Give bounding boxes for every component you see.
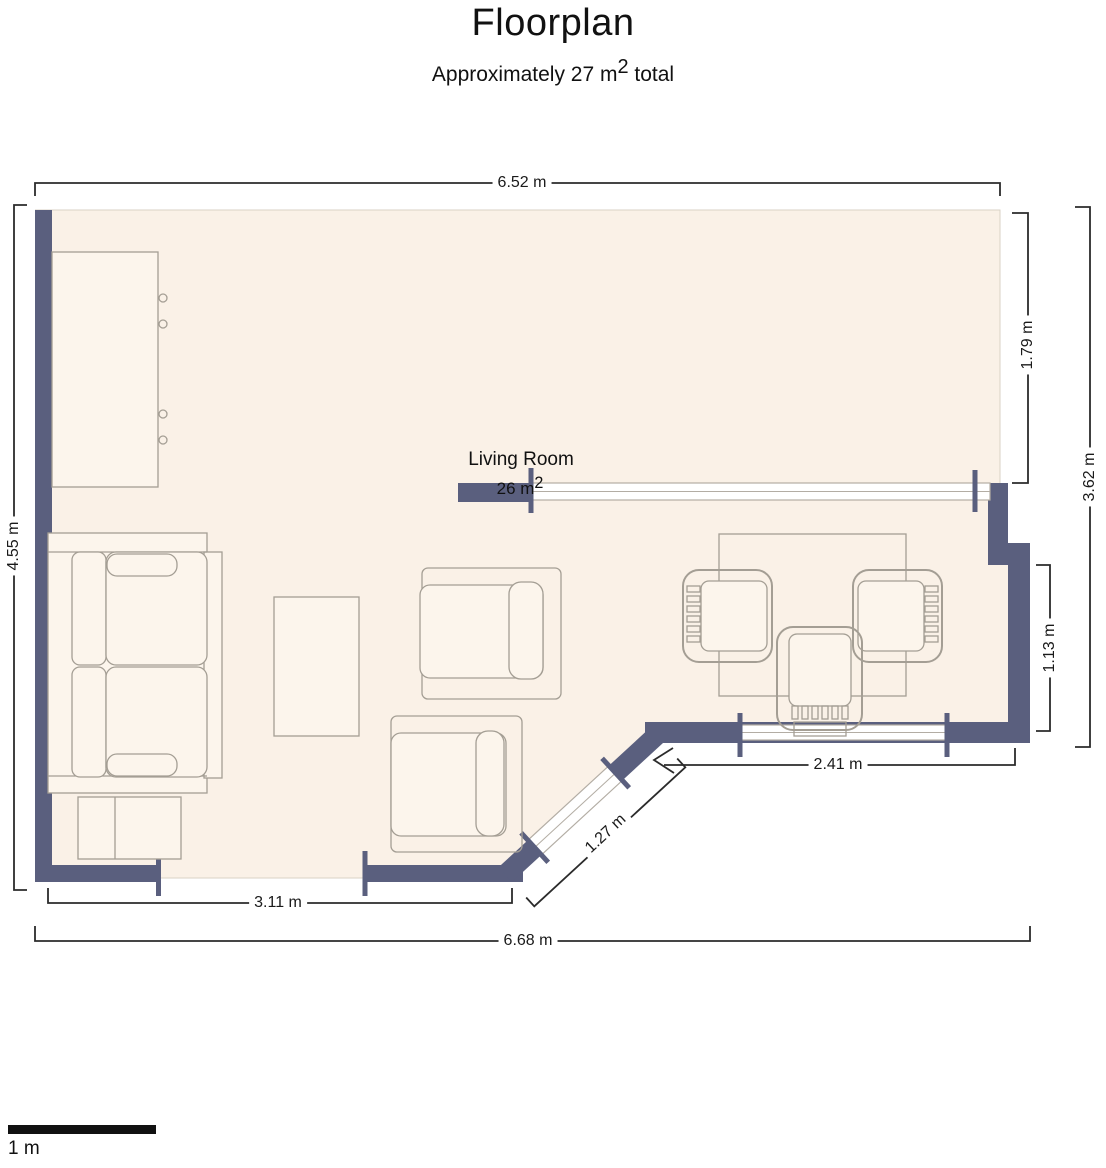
scale-bar xyxy=(8,1125,156,1134)
room-name-label: Living Room xyxy=(468,449,574,471)
armchair-bottom xyxy=(391,716,522,852)
ottoman xyxy=(78,797,181,859)
dim-label-top-width: 6.52 m xyxy=(493,174,552,192)
subtitle-superscript: 2 xyxy=(617,56,628,78)
floorplan-drawing xyxy=(0,0,1106,1168)
room-area-superscript: 2 xyxy=(534,474,543,492)
dim-label-bottom-inner: 3.11 m xyxy=(249,894,307,912)
page-subtitle: Approximately 27 m2 total xyxy=(432,63,674,87)
coffee-table xyxy=(274,597,359,736)
dim-label-bottom-total: 6.68 m xyxy=(499,932,558,950)
subtitle-suffix: total xyxy=(629,63,675,86)
dim-label-left-height: 4.55 m xyxy=(5,517,23,576)
cabinet xyxy=(52,252,167,487)
dim-label-right-total: 3.62 m xyxy=(1081,448,1099,507)
dim-label-right-upper: 1.79 m xyxy=(1019,316,1037,375)
floorplan-page: Floorplan Approximately 27 m2 total Livi… xyxy=(0,0,1106,1168)
dim-label-dining-width: 2.41 m xyxy=(809,756,868,774)
page-title: Floorplan xyxy=(472,2,635,45)
scale-bar-label: 1 m xyxy=(8,1138,40,1160)
room-area-text: 26 m xyxy=(497,479,535,498)
subtitle-text: Approximately 27 m xyxy=(432,63,618,86)
dim-label-right-lower: 1.13 m xyxy=(1041,619,1059,678)
sofa xyxy=(48,533,222,793)
room-area-label: 26 m2 xyxy=(497,479,544,499)
